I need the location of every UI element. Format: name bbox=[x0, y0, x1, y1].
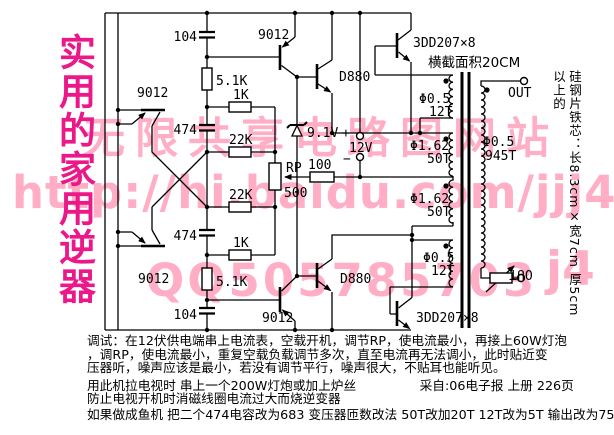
capacitor-474-top bbox=[199, 125, 215, 131]
label-rp-500: 500 bbox=[284, 186, 307, 201]
page-title: 实用的家用逆器 bbox=[55, 33, 93, 306]
label-9012-top-left: 9012 bbox=[137, 86, 168, 101]
label-w1-turns: 12T bbox=[429, 105, 453, 120]
label-d880-bottom: D880 bbox=[340, 272, 371, 287]
label-9012-bottom-right: 9012 bbox=[262, 311, 293, 326]
resistor-1k-top bbox=[229, 102, 251, 112]
label-22k-top: 22K bbox=[229, 133, 253, 148]
label-1k-bottom: 1K bbox=[233, 236, 249, 251]
capacitor-104-top bbox=[199, 32, 215, 38]
label-w3-turns: 50T bbox=[427, 205, 451, 220]
note-line-3: 压器听，噪声应该是最小，若没有调节平行，噪声很大，不贴耳也能听见。 bbox=[87, 361, 614, 375]
potentiometer-rp-500 bbox=[269, 163, 281, 190]
note-line-2: ，调RP，使电流最小，重复空载负载调节多次，直至电流再无法调小，此时贴近变 bbox=[87, 348, 614, 362]
core-spec-note: 硅钢片铁芯：长8.3cm×宽7cm 厚5cm 以上的 bbox=[550, 70, 582, 330]
arrow-strokes bbox=[132, 37, 514, 329]
label-100: 100 bbox=[308, 158, 331, 173]
resistor-5k1-top bbox=[202, 68, 212, 90]
label-d880-top: D880 bbox=[339, 70, 370, 85]
label-w4-turns: 12T bbox=[431, 264, 455, 279]
label-out-bottom: OUT bbox=[509, 266, 533, 281]
note-line-6: 如果做成鱼机 把二个474电容改为683 变压器匝数改法 50T改加20T 12… bbox=[87, 408, 614, 422]
label-w2-turns: 50T bbox=[427, 152, 451, 167]
label-battery-minus: − bbox=[343, 152, 351, 167]
phase-dot-w4 bbox=[443, 243, 448, 248]
label-secondary-turns: 945T bbox=[485, 149, 516, 164]
output-adjustable-element bbox=[490, 273, 512, 283]
label-secondary-wire: Φ0.5 bbox=[483, 135, 514, 150]
output-terminal-top bbox=[521, 78, 528, 85]
label-5k1-top: 5.1K bbox=[216, 74, 247, 89]
label-rp: RP bbox=[286, 161, 302, 176]
zener-diode-9v1 bbox=[287, 122, 307, 136]
resistor-22k-top bbox=[229, 147, 251, 157]
label-9012-bottom-left: 9012 bbox=[138, 272, 169, 287]
label-9012-top-right: 9012 bbox=[258, 28, 289, 43]
resistor-1k-bottom bbox=[229, 250, 251, 260]
capacitor-474-bottom bbox=[199, 230, 215, 236]
phase-dot-w1 bbox=[443, 78, 448, 83]
label-474-bottom: 474 bbox=[174, 229, 198, 244]
battery-plus-terminal bbox=[357, 133, 364, 140]
label-22k-bottom: 22K bbox=[229, 188, 253, 203]
label-5k1-bottom: 5.1K bbox=[216, 275, 247, 290]
label-c104-top: 104 bbox=[174, 30, 198, 45]
note-line-1: 调试：在12伏供电端串上电流表，空载开机，调节RP，使电流最小，再接上60W灯泡 bbox=[87, 334, 614, 348]
resistor-100 bbox=[310, 172, 334, 182]
label-battery-12v: 12V bbox=[349, 141, 373, 156]
label-1k-top: 1K bbox=[233, 88, 249, 103]
phase-dot-secondary bbox=[484, 87, 489, 92]
label-3dd207-top: 3DD207×8 bbox=[413, 36, 476, 51]
note-line-4: 用此机拉电视时 串上一个200W灯炮或加上炉丝 采自:06电子报 上册 226页 bbox=[87, 379, 614, 393]
label-474-top: 474 bbox=[174, 123, 198, 138]
resistor-5k1-bottom bbox=[202, 268, 212, 290]
phase-dot-w3 bbox=[443, 183, 448, 188]
label-out-top: OUT bbox=[508, 86, 532, 101]
resistor-22k-bottom bbox=[229, 202, 251, 212]
screenshot-root: 无限共享电路图网站 http://hi.baidu.com/jjj4 QQ505… bbox=[0, 0, 614, 435]
debug-notes: 调试：在12伏供电端串上电流表，空载开机，调节RP，使电流最小，再接上60W灯泡… bbox=[87, 334, 614, 422]
secondary-coil-945t bbox=[481, 86, 485, 268]
note-line-5: 防止电视开机时消磁线圈电流过大而烧逆变器 bbox=[87, 392, 614, 406]
label-battery-plus: + bbox=[342, 126, 350, 141]
capacitor-104-bottom bbox=[199, 308, 215, 314]
label-c104-bottom: 104 bbox=[174, 308, 198, 323]
label-core-area: 横截面积20CM bbox=[428, 55, 520, 71]
label-3dd207-bottom: 3DD207×8 bbox=[416, 311, 479, 326]
label-zener-9v1: 9.1V bbox=[307, 126, 338, 141]
transformer-coils bbox=[449, 75, 485, 287]
